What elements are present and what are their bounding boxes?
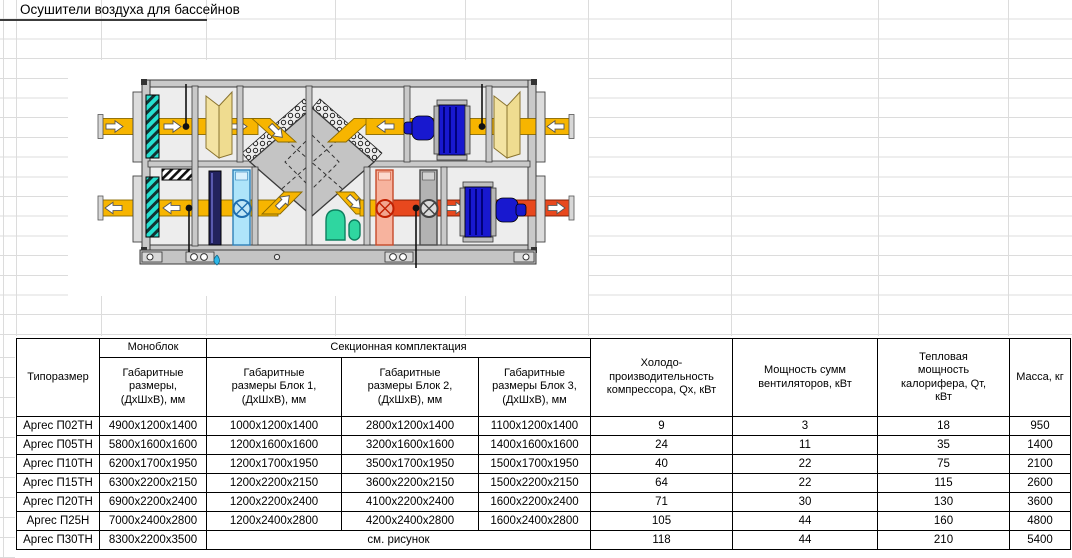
spreadsheet-page: { "title": "Осушители воздуха для бассей… xyxy=(0,0,1072,558)
table-cell[interactable]: 8300х2200х3500 xyxy=(100,531,207,550)
table-cell[interactable]: 2100 xyxy=(1010,455,1071,474)
table-cell[interactable]: 11 xyxy=(733,436,878,455)
valve-heater-icon xyxy=(377,200,394,217)
table-cell[interactable]: Аргес П02ТН xyxy=(17,417,100,436)
table-cell[interactable]: 40 xyxy=(591,455,733,474)
table-cell[interactable]: 22 xyxy=(733,474,878,493)
sheet-gridlines-left xyxy=(0,336,15,558)
table-cell[interactable]: 210 xyxy=(878,531,1010,550)
table-cell[interactable]: 1200х2200х2150 xyxy=(207,474,342,493)
header-block1-dims[interactable]: Габаритные размеры Блок 1, (ДхШхВ), мм xyxy=(207,358,342,417)
table-cell[interactable]: 160 xyxy=(878,512,1010,531)
table-cell[interactable]: 75 xyxy=(878,455,1010,474)
table-cell[interactable]: 1200х2200х2400 xyxy=(207,493,342,512)
table-cell[interactable]: 4100х2200х2400 xyxy=(342,493,479,512)
table-row: Аргес П10ТН6200х1700х19501200х1700х19503… xyxy=(17,455,1071,474)
table-cell[interactable]: 7000х2400х2800 xyxy=(100,512,207,531)
header-fan-power[interactable]: Мощность сумм вентиляторов, кВт xyxy=(733,339,878,417)
table-cell[interactable]: 1200х1700х1950 xyxy=(207,455,342,474)
header-tiporazmer[interactable]: Типоразмер xyxy=(17,339,100,417)
table-cell[interactable]: 3500х1700х1950 xyxy=(342,455,479,474)
table-cell[interactable]: 4800 xyxy=(1010,512,1071,531)
table-cell[interactable]: 5800х1600х1600 xyxy=(100,436,207,455)
table-cell[interactable]: 1400 xyxy=(1010,436,1071,455)
table-cell[interactable]: 1600х2200х2400 xyxy=(479,493,591,512)
table-cell[interactable]: 1000х1200х1400 xyxy=(207,417,342,436)
table-cell[interactable]: 6300х2200х2150 xyxy=(100,474,207,493)
table-cell[interactable]: 1200х2400х2800 xyxy=(207,512,342,531)
valve-gray-icon xyxy=(421,200,438,217)
table-cell[interactable]: 4200х2400х2800 xyxy=(342,512,479,531)
table-cell[interactable]: 1100х1200х1400 xyxy=(479,417,591,436)
table-cell[interactable]: 1500х1700х1950 xyxy=(479,455,591,474)
spec-table-body: Аргес П02ТН4900х1200х14001000х1200х14002… xyxy=(17,417,1071,550)
table-cell[interactable]: 105 xyxy=(591,512,733,531)
header-block2-dims[interactable]: Габаритные размеры Блок 2, (ДхШхВ), мм xyxy=(342,358,479,417)
table-row: Аргес П05ТН5800х1600х16001200х1600х16003… xyxy=(17,436,1071,455)
table-cell[interactable]: Аргес П20ТН xyxy=(17,493,100,512)
table-cell[interactable]: 118 xyxy=(591,531,733,550)
table-row: Аргес П30ТН8300х2200х3500см. рисунок1184… xyxy=(17,531,1071,550)
table-cell[interactable]: 64 xyxy=(591,474,733,493)
table-cell[interactable]: 18 xyxy=(878,417,1010,436)
table-cell[interactable]: Аргес П10ТН xyxy=(17,455,100,474)
valve-cooler-icon xyxy=(234,200,251,217)
table-cell[interactable]: 4900х1200х1400 xyxy=(100,417,207,436)
table-row: Аргес П20ТН6900х2200х24001200х2200х24004… xyxy=(17,493,1071,512)
header-mass[interactable]: Масса, кг xyxy=(1010,339,1071,417)
table-cell[interactable]: 71 xyxy=(591,493,733,512)
table-cell[interactable]: Аргес П30ТН xyxy=(17,531,100,550)
table-cell[interactable]: 44 xyxy=(733,531,878,550)
table-cell[interactable]: 35 xyxy=(878,436,1010,455)
page-title[interactable]: Осушители воздуха для бассейнов xyxy=(20,2,240,17)
table-cell[interactable]: 6900х2200х2400 xyxy=(100,493,207,512)
table-cell[interactable]: 1400х1600х1600 xyxy=(479,436,591,455)
table-cell[interactable]: 3600х2200х2150 xyxy=(342,474,479,493)
table-row: Аргес П25Н7000х2400х28001200х2400х280042… xyxy=(17,512,1071,531)
ahu-diagram xyxy=(68,60,588,296)
table-cell[interactable]: Аргес П05ТН xyxy=(17,436,100,455)
ahu-diagram-image[interactable] xyxy=(68,60,588,296)
table-cell[interactable]: 22 xyxy=(733,455,878,474)
table-cell[interactable]: 115 xyxy=(878,474,1010,493)
header-monoblock[interactable]: Моноблок xyxy=(100,339,207,358)
table-cell[interactable]: 1500х2200х2150 xyxy=(479,474,591,493)
table-cell[interactable]: 44 xyxy=(733,512,878,531)
table-row: Аргес П02ТН4900х1200х14001000х1200х14002… xyxy=(17,417,1071,436)
table-cell[interactable]: Аргес П25Н xyxy=(17,512,100,531)
table-cell[interactable]: 30 xyxy=(733,493,878,512)
header-sectional[interactable]: Секционная комплектация xyxy=(207,339,591,358)
table-cell[interactable]: 6200х1700х1950 xyxy=(100,455,207,474)
base-frame xyxy=(140,250,536,265)
title-cell-border xyxy=(0,19,207,21)
table-cell[interactable]: 1600х2400х2800 xyxy=(479,512,591,531)
table-cell[interactable]: 5400 xyxy=(1010,531,1071,550)
header-mono-dims[interactable]: Габаритные размеры, (ДхШхВ), мм xyxy=(100,358,207,417)
spec-table: Типоразмер Моноблок Секционная комплекта… xyxy=(16,338,1071,550)
table-cell[interactable]: 24 xyxy=(591,436,733,455)
table-cell[interactable]: 1200х1600х1600 xyxy=(207,436,342,455)
table-row: Аргес П15ТН6300х2200х21501200х2200х21503… xyxy=(17,474,1071,493)
header-block3-dims[interactable]: Габаритные размеры Блок 3, (ДхШхВ), мм xyxy=(479,358,591,417)
table-cell[interactable]: 9 xyxy=(591,417,733,436)
table-cell[interactable]: 3600 xyxy=(1010,493,1071,512)
damper-blade-icon xyxy=(209,171,221,245)
table-cell[interactable]: 3 xyxy=(733,417,878,436)
header-heat-power[interactable]: Тепловая мощность калорифера, Qт, кВт xyxy=(878,339,1010,417)
table-cell[interactable]: Аргес П15ТН xyxy=(17,474,100,493)
table-cell[interactable]: 2600 xyxy=(1010,474,1071,493)
table-cell[interactable]: 950 xyxy=(1010,417,1071,436)
table-cell[interactable]: 3200х1600х1600 xyxy=(342,436,479,455)
table-cell[interactable]: 2800х1200х1400 xyxy=(342,417,479,436)
header-cooling-capacity[interactable]: Холодо- производительность компрессора, … xyxy=(591,339,733,417)
table-cell[interactable]: 130 xyxy=(878,493,1010,512)
table-cell[interactable]: см. рисунок xyxy=(207,531,591,550)
